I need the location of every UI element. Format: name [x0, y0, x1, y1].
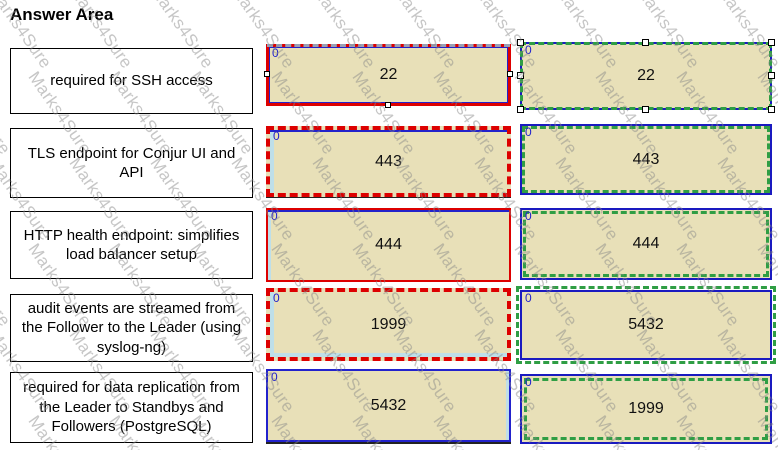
answer-area: Answer Area required for SSH access TLS …: [0, 0, 778, 450]
box-index-marker: 0: [271, 210, 278, 222]
drop-box-middle-5[interactable]: 0 5432: [266, 369, 511, 442]
selection-handle[interactable]: [768, 39, 775, 46]
selection-handle[interactable]: [264, 71, 270, 77]
label-data-replication: required for data replication from the L…: [10, 372, 253, 443]
selection-handle[interactable]: [642, 39, 649, 46]
selection-handle[interactable]: [517, 72, 524, 79]
drop-box-right-4[interactable]: 0 5432: [520, 290, 772, 360]
port-value: 444: [633, 235, 660, 253]
selection-handle[interactable]: [768, 106, 775, 113]
drop-box-right-2[interactable]: 0 443: [520, 124, 772, 195]
box-index-marker: 0: [525, 44, 532, 56]
selection-handle[interactable]: [385, 102, 391, 108]
box-index-marker: 0: [273, 292, 280, 304]
label-http-health: HTTP health endpoint: simplifies load ba…: [10, 211, 253, 279]
box-index-marker: 0: [525, 292, 532, 304]
port-value: 444: [375, 236, 402, 254]
drop-box-middle-1[interactable]: 0 22: [266, 44, 511, 106]
port-value: 443: [633, 151, 660, 169]
port-value: 1999: [371, 316, 407, 334]
label-text: required for SSH access: [50, 71, 213, 91]
box-index-marker: 0: [525, 126, 532, 138]
label-text: TLS endpoint for Conjur UI and API: [19, 144, 244, 183]
selection-handle[interactable]: [768, 72, 775, 79]
drop-box-middle-4[interactable]: 0 1999: [266, 288, 511, 361]
label-audit-events: audit events are streamed from the Follo…: [10, 294, 253, 362]
box-index-marker: 0: [271, 371, 278, 383]
port-value: 22: [637, 67, 655, 85]
label-ssh-access: required for SSH access: [10, 48, 253, 114]
port-value: 443: [375, 153, 402, 171]
label-text: audit events are streamed from the Follo…: [19, 299, 244, 358]
box-index-marker: 0: [273, 130, 280, 142]
selection-handle[interactable]: [517, 39, 524, 46]
port-value: 5432: [628, 316, 664, 334]
selection-handle[interactable]: [517, 106, 524, 113]
selection-handle[interactable]: [507, 71, 513, 77]
drop-box-middle-2[interactable]: 0 443: [266, 126, 511, 197]
drop-box-right-3[interactable]: 0 444: [520, 208, 772, 280]
box-index-marker: 0: [525, 210, 532, 222]
label-text: HTTP health endpoint: simplifies load ba…: [19, 226, 244, 265]
port-value: 5432: [371, 397, 407, 415]
port-value: 1999: [628, 400, 664, 418]
page-title: Answer Area: [10, 5, 113, 25]
drop-box-right-5[interactable]: 0 1999: [520, 374, 772, 444]
port-value: 22: [380, 66, 398, 84]
label-tls-endpoint: TLS endpoint for Conjur UI and API: [10, 128, 253, 198]
label-text: required for data replication from the L…: [19, 378, 244, 437]
box-index-marker: 0: [272, 47, 279, 59]
drop-box-right-1[interactable]: 0 22: [520, 42, 772, 110]
drop-box-middle-3[interactable]: 0 444: [266, 208, 511, 282]
box-index-marker: 0: [525, 376, 532, 388]
selection-handle[interactable]: [642, 106, 649, 113]
